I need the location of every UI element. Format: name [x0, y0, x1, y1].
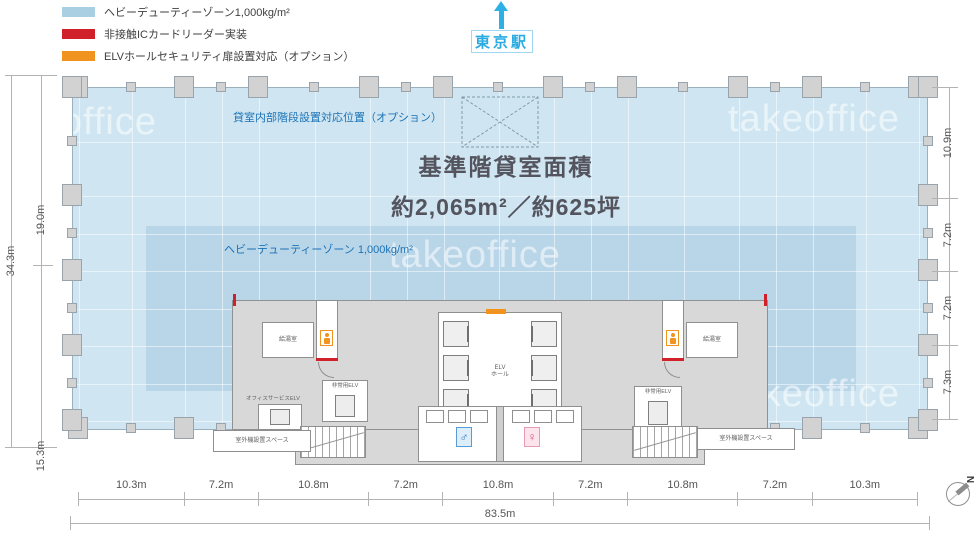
perimeter-column	[359, 76, 379, 98]
stair-option-label: 貸室内部階段設置対応位置（オプション）	[233, 109, 442, 125]
stair-option-area	[461, 96, 539, 148]
dim-left-total: 34.3m	[4, 236, 18, 286]
perimeter-column-small	[67, 228, 77, 238]
grid-line	[813, 88, 814, 429]
dimension-line-bottom	[78, 499, 918, 500]
kitchenette-left-label: 給湯室	[279, 337, 297, 344]
dim-right-segment: 7.2m	[932, 198, 958, 271]
perimeter-column	[248, 76, 268, 98]
perimeter-column-small	[67, 303, 77, 313]
perimeter-column-small	[860, 82, 870, 92]
perimeter-column-small	[401, 82, 411, 92]
dim-left-segment: 19.0m	[34, 195, 48, 245]
emergency-elv-right-label: 非常用ELV	[635, 389, 681, 396]
elv-hall-security-door-marker	[486, 309, 506, 314]
legend-item-elv-security: ELVホールセキュリティ扉設置対応（オプション）	[62, 49, 354, 63]
dim-left-segment: 15.3m	[34, 431, 48, 481]
dimension-line-left-segments	[41, 75, 42, 447]
dimension-tick	[70, 516, 71, 530]
dimension-tick	[5, 75, 57, 76]
grid-line	[866, 88, 867, 429]
grid-line	[132, 88, 133, 429]
legend-label: ヘビーデューティーゾーン1,000kg/m²	[104, 4, 290, 20]
grid-line	[222, 88, 223, 429]
ic-card-reader-marker	[662, 358, 684, 361]
restroom-divider-wall	[496, 406, 504, 462]
dimension-tick	[5, 447, 57, 448]
outdoor-unit-space-right: 室外機設置スペース	[697, 428, 795, 450]
perimeter-column-small	[67, 378, 77, 388]
grid-line	[185, 88, 186, 429]
floorplan-canvas: ヘビーデューティーゾーン1,000kg/m² 非接触ICカードリーダー実装 EL…	[0, 0, 980, 538]
elevator-cab	[443, 321, 469, 347]
perimeter-column	[543, 76, 563, 98]
dim-bottom-total: 83.5m	[460, 508, 540, 520]
perimeter-column	[62, 184, 82, 206]
kitchenette-left: 給湯室	[262, 322, 314, 358]
accessible-toilet-icon	[320, 330, 333, 346]
perimeter-column	[433, 76, 453, 98]
grid-line	[73, 271, 927, 272]
elv-hall-label: ELV ホール	[439, 365, 561, 379]
title-line2: 約2,065m²／約625坪	[320, 188, 692, 222]
perimeter-column-small	[126, 423, 136, 433]
kitchenette-right: 給湯室	[686, 322, 738, 358]
perimeter-column	[802, 76, 822, 98]
watermark: takeoffice	[72, 101, 157, 144]
stairs-right	[632, 426, 698, 458]
office-service-elv-shaft	[258, 404, 302, 430]
grid-line	[73, 234, 927, 235]
dimension-tick	[929, 516, 930, 530]
perimeter-column	[62, 409, 82, 431]
station-label-box: 東京駅	[471, 30, 533, 53]
legend-label: ELVホールセキュリティ扉設置対応（オプション）	[104, 48, 354, 64]
emergency-elv-left-label: 非常用ELV	[323, 383, 367, 390]
title-line1: 基準階貸室面積	[320, 148, 692, 182]
toilet-stall	[470, 410, 488, 423]
dimension-line-total	[70, 523, 930, 524]
dim-right-segment: 10.9m	[932, 88, 958, 198]
station-label: 東京駅	[475, 31, 529, 52]
office-service-elv-label: オフィスサービスELV	[246, 396, 328, 403]
perimeter-column	[174, 76, 194, 98]
compass-icon	[946, 482, 970, 506]
perimeter-column	[728, 76, 748, 98]
rentable-area-title: 基準階貸室面積 約2,065m²／約625坪	[320, 148, 692, 222]
dimension-tick	[33, 265, 53, 266]
elv-security-swatch	[62, 51, 95, 61]
perimeter-column-small	[678, 82, 688, 92]
mens-restroom-icon: ♂	[456, 427, 472, 447]
heavy-duty-zone-label: ヘビーデューティーゾーン 1,000kg/m²	[224, 241, 413, 257]
legend-item-heavy-duty: ヘビーデューティーゾーン1,000kg/m²	[62, 5, 290, 19]
perimeter-column-small	[585, 82, 595, 92]
kitchenette-right-label: 給湯室	[703, 337, 721, 344]
outdoor-unit-left-label: 室外機設置スペース	[235, 438, 288, 445]
perimeter-column	[62, 259, 82, 281]
perimeter-column	[62, 334, 82, 356]
toilet-stall	[512, 410, 530, 423]
north-arrow-shaft	[499, 10, 504, 29]
ic-card-reader-marker	[316, 358, 338, 361]
toilet-stall	[556, 410, 574, 423]
perimeter-column-small	[126, 82, 136, 92]
ic-reader-swatch	[62, 29, 95, 39]
dim-right-segment: 7.2m	[932, 271, 958, 344]
perimeter-column-small	[860, 423, 870, 433]
heavy-duty-swatch	[62, 7, 95, 17]
perimeter-column-small	[493, 82, 503, 92]
outdoor-unit-right-label: 室外機設置スペース	[719, 436, 772, 443]
ic-card-reader-marker	[233, 294, 236, 306]
elevator-cab	[531, 321, 557, 347]
perimeter-column	[802, 417, 822, 439]
outdoor-unit-space-left: 室外機設置スペース	[213, 430, 311, 452]
legend-item-ic-reader: 非接触ICカードリーダー実装	[62, 27, 247, 41]
toilet-stall	[534, 410, 552, 423]
perimeter-column	[174, 417, 194, 439]
compass-north-label: N	[964, 476, 975, 483]
toilet-stall	[426, 410, 444, 423]
perimeter-column-small	[309, 82, 319, 92]
legend-label: 非接触ICカードリーダー実装	[104, 26, 247, 42]
emergency-elv-left: 非常用ELV	[322, 380, 368, 422]
grid-line	[776, 88, 777, 429]
accessible-toilet-icon	[666, 330, 679, 346]
perimeter-column	[62, 76, 82, 98]
ic-card-reader-marker	[764, 294, 767, 306]
emergency-elv-right: 非常用ELV	[634, 386, 682, 430]
legend: ヘビーデューティーゾーン1,000kg/m² 非接触ICカードリーダー実装 EL…	[62, 3, 442, 63]
womens-restroom-icon: ♀	[524, 427, 540, 447]
perimeter-column-small	[770, 82, 780, 92]
toilet-stall	[448, 410, 466, 423]
perimeter-column-small	[216, 82, 226, 92]
dim-right-segment: 7.3m	[932, 345, 958, 419]
perimeter-column-small	[67, 136, 77, 146]
dimension-column-right: 10.9m7.2m7.2m7.3m	[932, 87, 958, 420]
perimeter-column	[617, 76, 637, 98]
